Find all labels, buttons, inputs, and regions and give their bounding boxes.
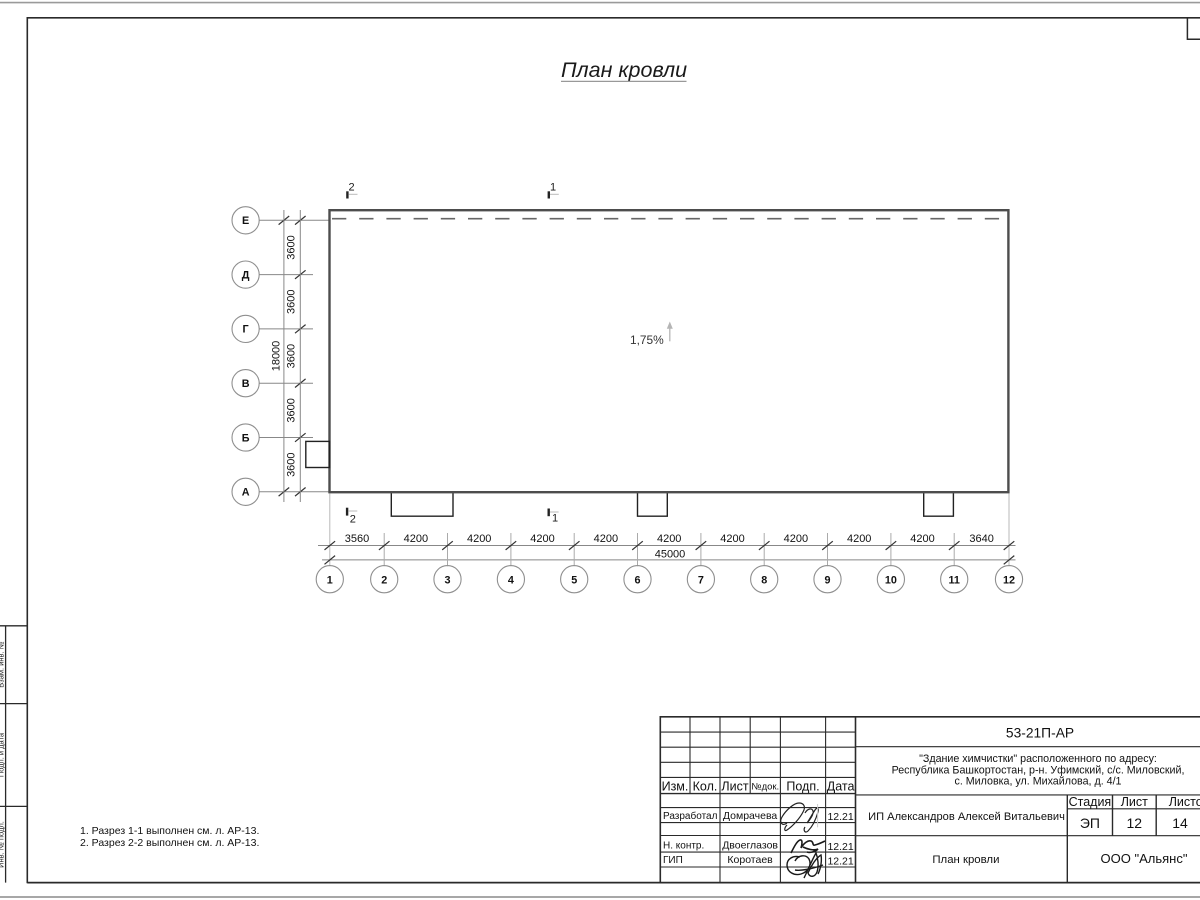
svg-text:12.21: 12.21	[827, 856, 853, 868]
svg-text:Подп. и дата: Подп. и дата	[0, 732, 6, 777]
svg-text:4: 4	[508, 574, 514, 586]
svg-text:4200: 4200	[404, 533, 428, 545]
svg-text:3600: 3600	[286, 344, 298, 368]
svg-text:Изм.: Изм.	[662, 779, 689, 793]
svg-text:Е: Е	[242, 215, 249, 227]
svg-text:3560: 3560	[345, 533, 369, 545]
svg-text:Домрачева: Домрачева	[723, 810, 778, 822]
svg-text:Инв. № подл.: Инв. № подл.	[0, 821, 6, 868]
svg-text:В: В	[242, 378, 250, 390]
svg-text:Дата: Дата	[827, 779, 855, 793]
svg-text:12: 12	[1003, 574, 1015, 586]
svg-text:12.21: 12.21	[827, 811, 853, 823]
svg-text:9: 9	[824, 574, 830, 586]
svg-text:Стадия: Стадия	[1069, 795, 1112, 809]
svg-text:12.21: 12.21	[827, 841, 853, 853]
svg-text:Лист: Лист	[721, 779, 748, 793]
svg-text:4200: 4200	[720, 533, 744, 545]
svg-text:4200: 4200	[847, 533, 871, 545]
svg-text:10: 10	[885, 574, 897, 586]
svg-text:План кровли: План кровли	[932, 854, 999, 866]
svg-text:План кровли: План кровли	[561, 58, 687, 82]
svg-text:Листов: Листов	[1169, 795, 1200, 809]
svg-text:12: 12	[1127, 815, 1143, 831]
svg-text:"Здание химчистки" расположенн: "Здание химчистки" расположенного по адр…	[919, 753, 1157, 765]
svg-text:7: 7	[698, 574, 704, 586]
svg-text:3600: 3600	[286, 452, 298, 476]
svg-text:1: 1	[550, 181, 556, 193]
svg-text:ЭП: ЭП	[1080, 815, 1100, 831]
svg-text:2. Разрез 2-2 выполнен см. л.: 2. Разрез 2-2 выполнен см. л. АР-13.	[80, 837, 259, 849]
svg-text:4200: 4200	[657, 533, 681, 545]
svg-text:4200: 4200	[910, 533, 934, 545]
svg-text:№док.: №док.	[751, 782, 779, 793]
svg-text:6: 6	[634, 574, 640, 586]
svg-text:11: 11	[948, 574, 959, 586]
svg-text:с. Миловка, ул. Михайлова, д.: с. Миловка, ул. Михайлова, д. 4/1	[955, 776, 1122, 788]
svg-text:2: 2	[381, 574, 387, 586]
svg-text:8: 8	[761, 574, 767, 586]
svg-text:ГИП: ГИП	[663, 855, 683, 866]
svg-text:Г: Г	[243, 324, 249, 336]
svg-text:4200: 4200	[594, 533, 618, 545]
svg-text:Коротаев: Коротаев	[727, 854, 773, 866]
svg-text:2: 2	[350, 513, 356, 525]
svg-text:Б: Б	[242, 432, 250, 444]
svg-text:Д: Д	[242, 269, 250, 281]
svg-text:2: 2	[349, 181, 355, 193]
svg-text:Кол.: Кол.	[693, 779, 718, 793]
svg-text:Н. контр.: Н. контр.	[663, 841, 704, 852]
svg-text:Подп.: Подп.	[786, 779, 819, 793]
svg-text:Двоеглазов: Двоеглазов	[722, 840, 778, 852]
svg-text:18000: 18000	[270, 341, 282, 372]
svg-text:53-21П-АР: 53-21П-АР	[1006, 725, 1074, 740]
svg-text:4200: 4200	[784, 533, 808, 545]
svg-text:3600: 3600	[286, 235, 298, 259]
svg-text:4200: 4200	[530, 533, 554, 545]
svg-text:А: А	[242, 487, 250, 499]
svg-text:4200: 4200	[467, 533, 491, 545]
svg-text:Разработал: Разработал	[663, 810, 718, 822]
svg-text:45000: 45000	[655, 548, 686, 560]
svg-text:1. Разрез 1-1 выполнен см. л.: 1. Разрез 1-1 выполнен см. л. АР-13.	[80, 825, 259, 837]
svg-text:Республика Башкортостан, р-н.: Республика Башкортостан, р-н. Уфимский, …	[892, 764, 1185, 776]
svg-text:Взам. инв. №: Взам. инв. №	[0, 641, 6, 687]
svg-text:3640: 3640	[969, 533, 993, 545]
svg-text:1: 1	[552, 513, 558, 525]
svg-text:14: 14	[1172, 815, 1188, 831]
svg-text:Лист: Лист	[1121, 795, 1148, 809]
svg-text:1,75%: 1,75%	[630, 333, 664, 347]
svg-text:1: 1	[327, 574, 333, 586]
svg-text:3600: 3600	[286, 398, 298, 422]
svg-text:ООО "Альянс": ООО "Альянс"	[1101, 851, 1188, 866]
svg-text:5: 5	[571, 574, 577, 586]
svg-text:3600: 3600	[286, 290, 298, 314]
svg-text:3: 3	[444, 574, 450, 586]
svg-text:ИП Александров Алексей Виталье: ИП Александров Алексей Витальевич	[868, 811, 1065, 823]
